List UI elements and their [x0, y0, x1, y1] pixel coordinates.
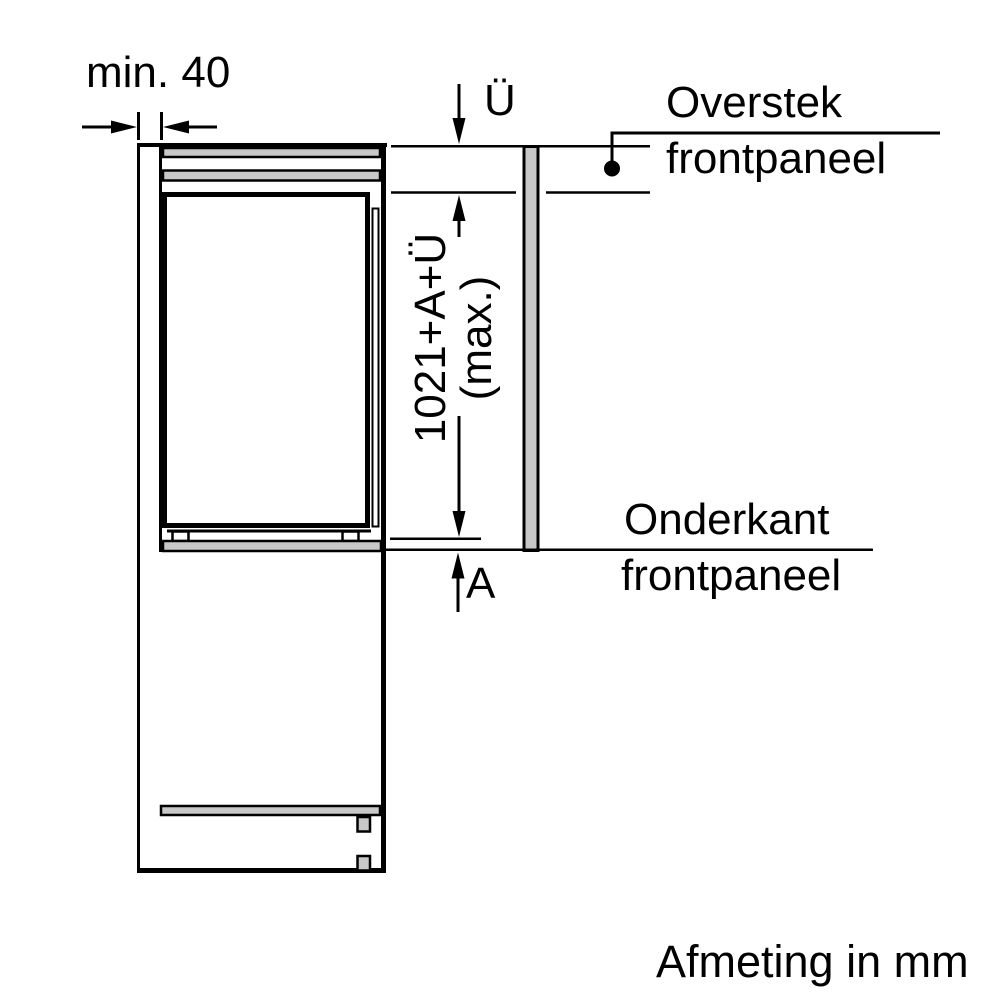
label-overstek-line2: frontpaneel	[666, 136, 886, 182]
dim-ue	[453, 84, 466, 144]
top-panel-bar-2	[163, 171, 380, 181]
label-min-gap: min. 40	[86, 50, 230, 96]
cabinet-inner-left-line	[159, 147, 162, 552]
appliance-body	[165, 195, 368, 526]
appliance	[165, 195, 379, 542]
appliance-base-line	[167, 530, 371, 533]
dim-height-arrow-down-icon	[453, 511, 466, 537]
dim-a-arrow-up-icon	[452, 553, 465, 579]
label-overstek-line1: Overstek	[666, 80, 842, 126]
cabinet-bottom-edge	[137, 868, 386, 873]
cabinet-right-wall	[381, 143, 386, 873]
label-units-note: Afmeting in mm	[656, 938, 969, 985]
dim-a	[452, 553, 465, 613]
bottom-shelf-panel	[163, 541, 381, 551]
label-max-height-line1: 1021+A+Ü	[408, 233, 454, 443]
cabinet-top-edge	[137, 143, 387, 147]
appliance-foot-left	[173, 532, 189, 542]
label-onderkant-line2: frontpaneel	[621, 553, 841, 599]
plinth-block-lower	[358, 856, 371, 871]
top-panels	[163, 148, 380, 181]
appliance-foot-right	[343, 532, 359, 542]
top-panel-bar-1	[163, 148, 380, 157]
label-onderkant-line1: Onderkant	[624, 497, 829, 543]
front-panel-bar	[524, 147, 538, 551]
bottom-furniture	[161, 541, 381, 871]
cabinet-left-wall	[137, 143, 140, 873]
label-max-height-line2: (max.)	[454, 233, 500, 443]
dim-min40-arrow-left-icon	[163, 121, 189, 134]
dim-height-arrow-up-icon	[453, 195, 466, 221]
overstek-leader-dot	[604, 161, 620, 177]
label-a-symbol: A	[466, 561, 495, 607]
lower-shelf-panel	[161, 806, 380, 815]
label-ue-symbol: Ü	[484, 78, 516, 124]
dim-min40	[82, 112, 217, 140]
installation-diagram: min. 40 Ü Overstek frontpaneel 1021+A+Ü …	[0, 0, 1000, 1000]
appliance-door-gap-line	[373, 209, 379, 527]
dim-ue-arrow-down-icon	[453, 118, 466, 144]
plinth-block-upper	[358, 817, 371, 832]
dim-min40-arrow-right-icon	[111, 121, 137, 134]
label-max-height: 1021+A+Ü (max.)	[408, 233, 500, 443]
